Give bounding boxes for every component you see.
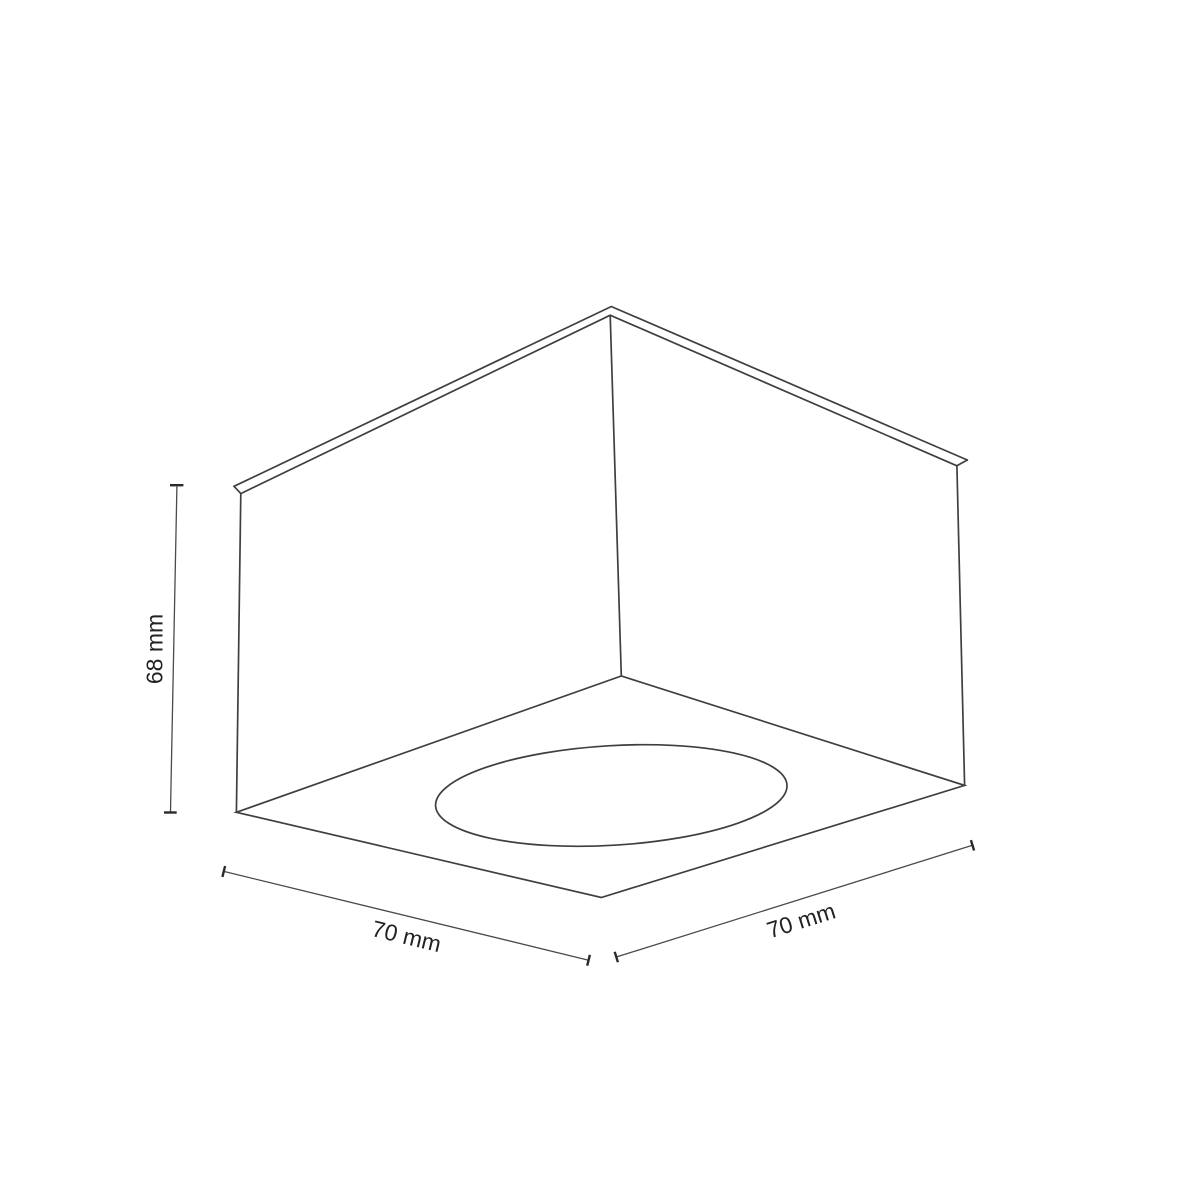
svg-text:68 mm: 68 mm (142, 614, 168, 684)
svg-text:70 mm: 70 mm (764, 897, 839, 943)
svg-text:70 mm: 70 mm (369, 915, 443, 957)
